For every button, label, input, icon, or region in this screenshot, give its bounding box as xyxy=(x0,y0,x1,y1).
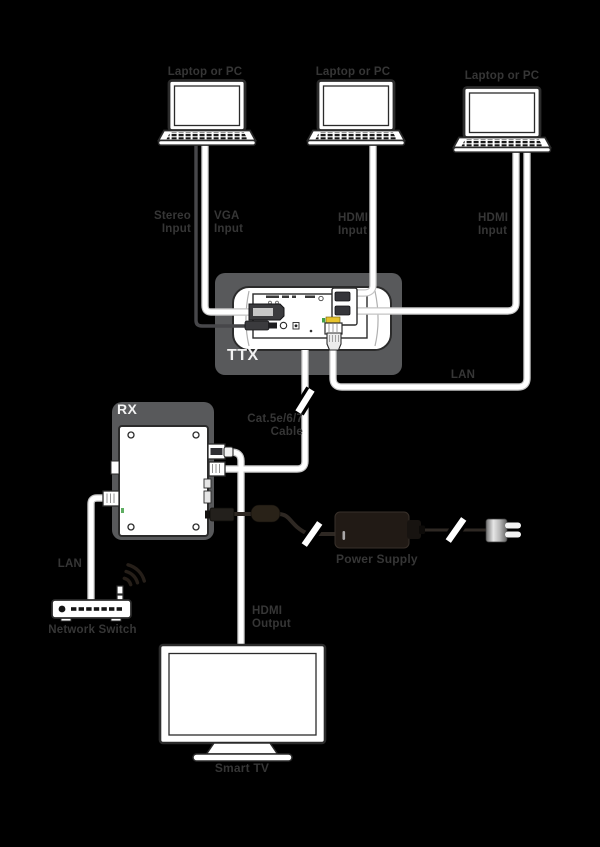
label-network-switch: Network Switch xyxy=(32,624,153,637)
smart-tv-device xyxy=(160,645,325,761)
label-hdmi-input-1: HDMI Input xyxy=(338,212,368,238)
label-laptop-1: Laptop or PC xyxy=(155,66,255,79)
label-vga-input: VGA Input xyxy=(214,210,243,236)
label-hdmi-input-2: HDMI Input xyxy=(478,212,508,238)
label-rx: RX xyxy=(117,403,137,416)
rx-hdmi-port xyxy=(208,444,233,459)
diagram-canvas: Laptop or PC Laptop or PC Laptop or PC S… xyxy=(0,0,600,847)
rx-small-port-2 xyxy=(204,491,211,503)
wifi-icon xyxy=(124,565,144,585)
lan-cable-bottom xyxy=(91,498,106,602)
label-ttx: TTX xyxy=(227,349,259,362)
label-lan-bottom: LAN xyxy=(42,558,82,571)
laptop-2 xyxy=(308,81,405,146)
label-power-supply: Power Supply xyxy=(336,553,418,566)
power-supply-brick xyxy=(335,512,425,548)
rx-lan-port xyxy=(103,491,119,506)
power-led xyxy=(343,531,346,540)
cable-break-cat xyxy=(293,387,318,416)
label-laptop-3: Laptop or PC xyxy=(452,70,552,83)
label-laptop-2: Laptop or PC xyxy=(303,66,403,79)
laptop-1 xyxy=(159,81,256,146)
label-hdmi-output: HDMI Output xyxy=(252,605,291,631)
label-smart-tv: Smart TV xyxy=(192,762,292,775)
hdmi-output-cable xyxy=(231,452,241,648)
vga-plug xyxy=(249,304,284,320)
label-cat-cable: Cat.5e/6/7 Cable xyxy=(203,413,303,439)
rx-receiver-unit xyxy=(111,426,208,536)
ferrite-bead xyxy=(251,505,280,522)
rx-small-port-1 xyxy=(204,479,211,488)
label-lan-top: LAN xyxy=(433,369,493,382)
switch-antenna xyxy=(117,586,123,594)
label-stereo-input: Stereo Input xyxy=(121,210,191,236)
ac-plug xyxy=(486,519,521,542)
network-switch-device xyxy=(52,565,144,621)
laptop-3 xyxy=(454,88,551,153)
rx-cat-port xyxy=(209,462,225,476)
